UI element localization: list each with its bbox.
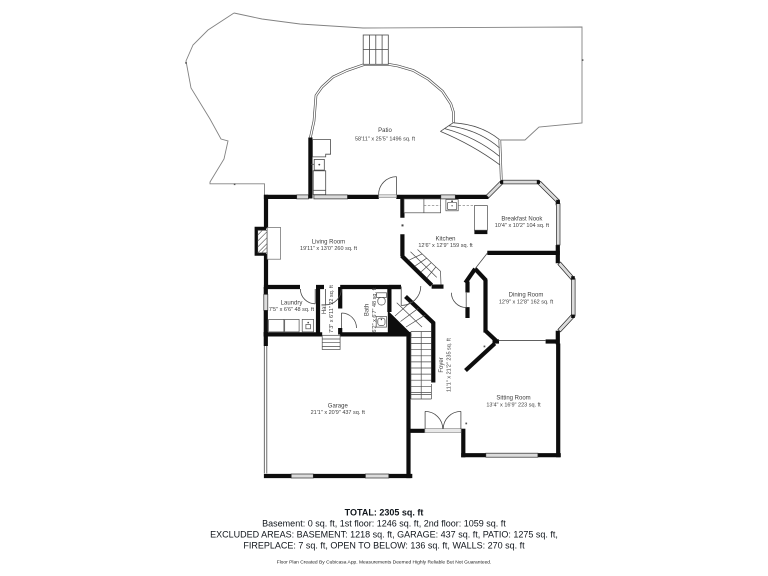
svg-text:Breakfast Nook: Breakfast Nook [501,217,543,223]
svg-text:Floor Plan Created By Cubicasa: Floor Plan Created By Cubicasa App. Meas… [277,560,492,566]
svg-text:Patio: Patio [378,128,392,134]
svg-text:TOTAL: 2305 sq. ft: TOTAL: 2305 sq. ft [345,508,424,518]
svg-text:21'1" x 20'9" 437 sq. ft: 21'1" x 20'9" 437 sq. ft [311,410,366,416]
svg-text:EXCLUDED AREAS: BASEMENT: 1218: EXCLUDED AREAS: BASEMENT: 1218 sq. ft, G… [210,530,558,540]
svg-text:58'11" x 25'5" 1496 sq. ft: 58'11" x 25'5" 1496 sq. ft [355,137,415,143]
svg-text:Foyer: Foyer [439,357,445,372]
svg-text:Living Room: Living Room [312,240,345,246]
svg-text:Bath: Bath [365,304,371,316]
svg-text:Hall: Hall [322,304,328,314]
svg-text:Sitting Room: Sitting Room [496,396,530,402]
svg-text:Dining Room: Dining Room [509,293,544,299]
svg-text:19'11" x 13'0" 260 sq. ft: 19'11" x 13'0" 260 sq. ft [300,246,357,252]
svg-text:10'4" x 10'2" 104 sq. ft: 10'4" x 10'2" 104 sq. ft [495,223,550,229]
svg-text:Garage: Garage [328,403,349,409]
svg-text:7'5" x 6'6" 48 sq. ft: 7'5" x 6'6" 48 sq. ft [269,307,315,313]
svg-text:FIREPLACE: 7 sq. ft, OPEN TO B: FIREPLACE: 7 sq. ft, OPEN TO BELOW: 136 … [243,540,525,550]
svg-text:12'9" x 12'8" 162 sq. ft: 12'9" x 12'8" 162 sq. ft [499,299,554,305]
svg-text:Basement: 0 sq. ft, 1st floor:: Basement: 0 sq. ft, 1st floor: 1246 sq. … [262,519,506,529]
svg-text:11'1" x 21'2" 235 sq. ft: 11'1" x 21'2" 235 sq. ft [447,338,453,392]
svg-text:13'4" x 16'9" 223 sq. ft: 13'4" x 16'9" 223 sq. ft [486,402,541,408]
svg-text:Kitchen: Kitchen [435,237,455,243]
svg-text:Laundry: Laundry [281,301,303,307]
svg-text:7'3" x 6'11" 22 sq. ft: 7'3" x 6'11" 22 sq. ft [329,285,335,333]
svg-text:12'6" x 12'9" 159 sq. ft: 12'6" x 12'9" 159 sq. ft [418,243,473,249]
svg-text:6'2" x 6'7" 48 sq. ft: 6'2" x 6'7" 48 sq. ft [372,287,378,333]
